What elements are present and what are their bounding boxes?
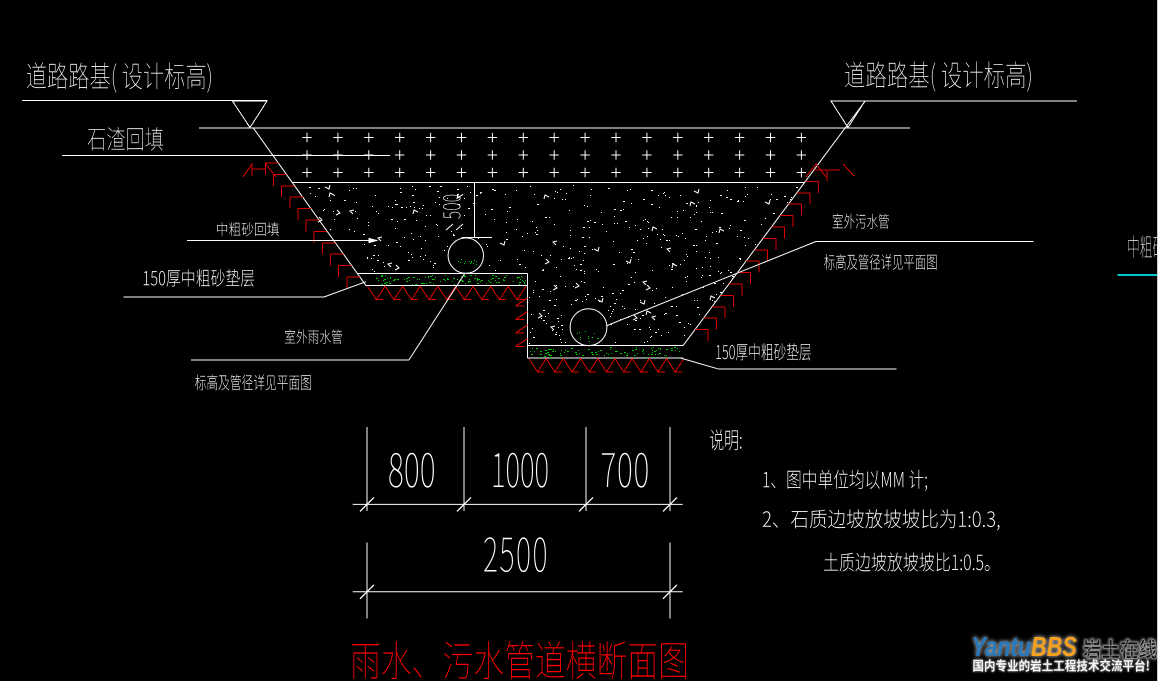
svg-text:YantuBBS: YantuBBS [972,631,1078,662]
